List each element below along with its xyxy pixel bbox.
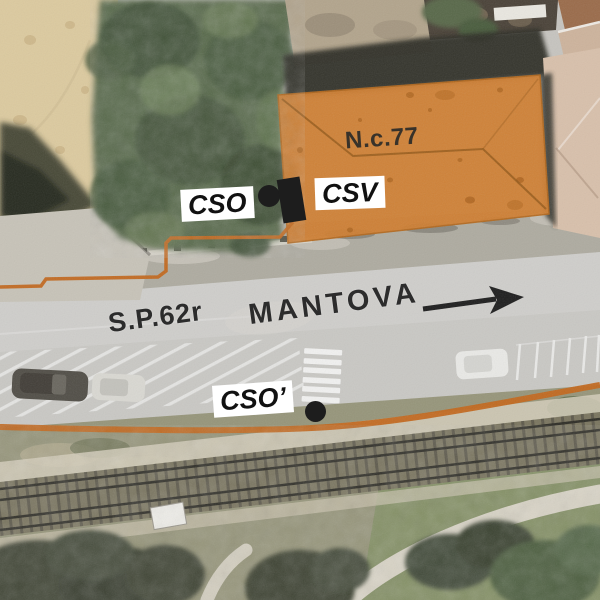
cso-label: CSO bbox=[180, 186, 254, 222]
csv-label: CSV bbox=[314, 176, 385, 211]
aerial-map-annotation: N.c.77 CSO CSV S.P.62r MANTOVA CSO’ bbox=[0, 0, 600, 600]
cso-prime-label: CSO’ bbox=[212, 380, 294, 418]
cso-prime-point-marker bbox=[305, 401, 326, 422]
building-label: N.c.77 bbox=[344, 122, 419, 155]
cso-point-marker bbox=[258, 185, 280, 207]
